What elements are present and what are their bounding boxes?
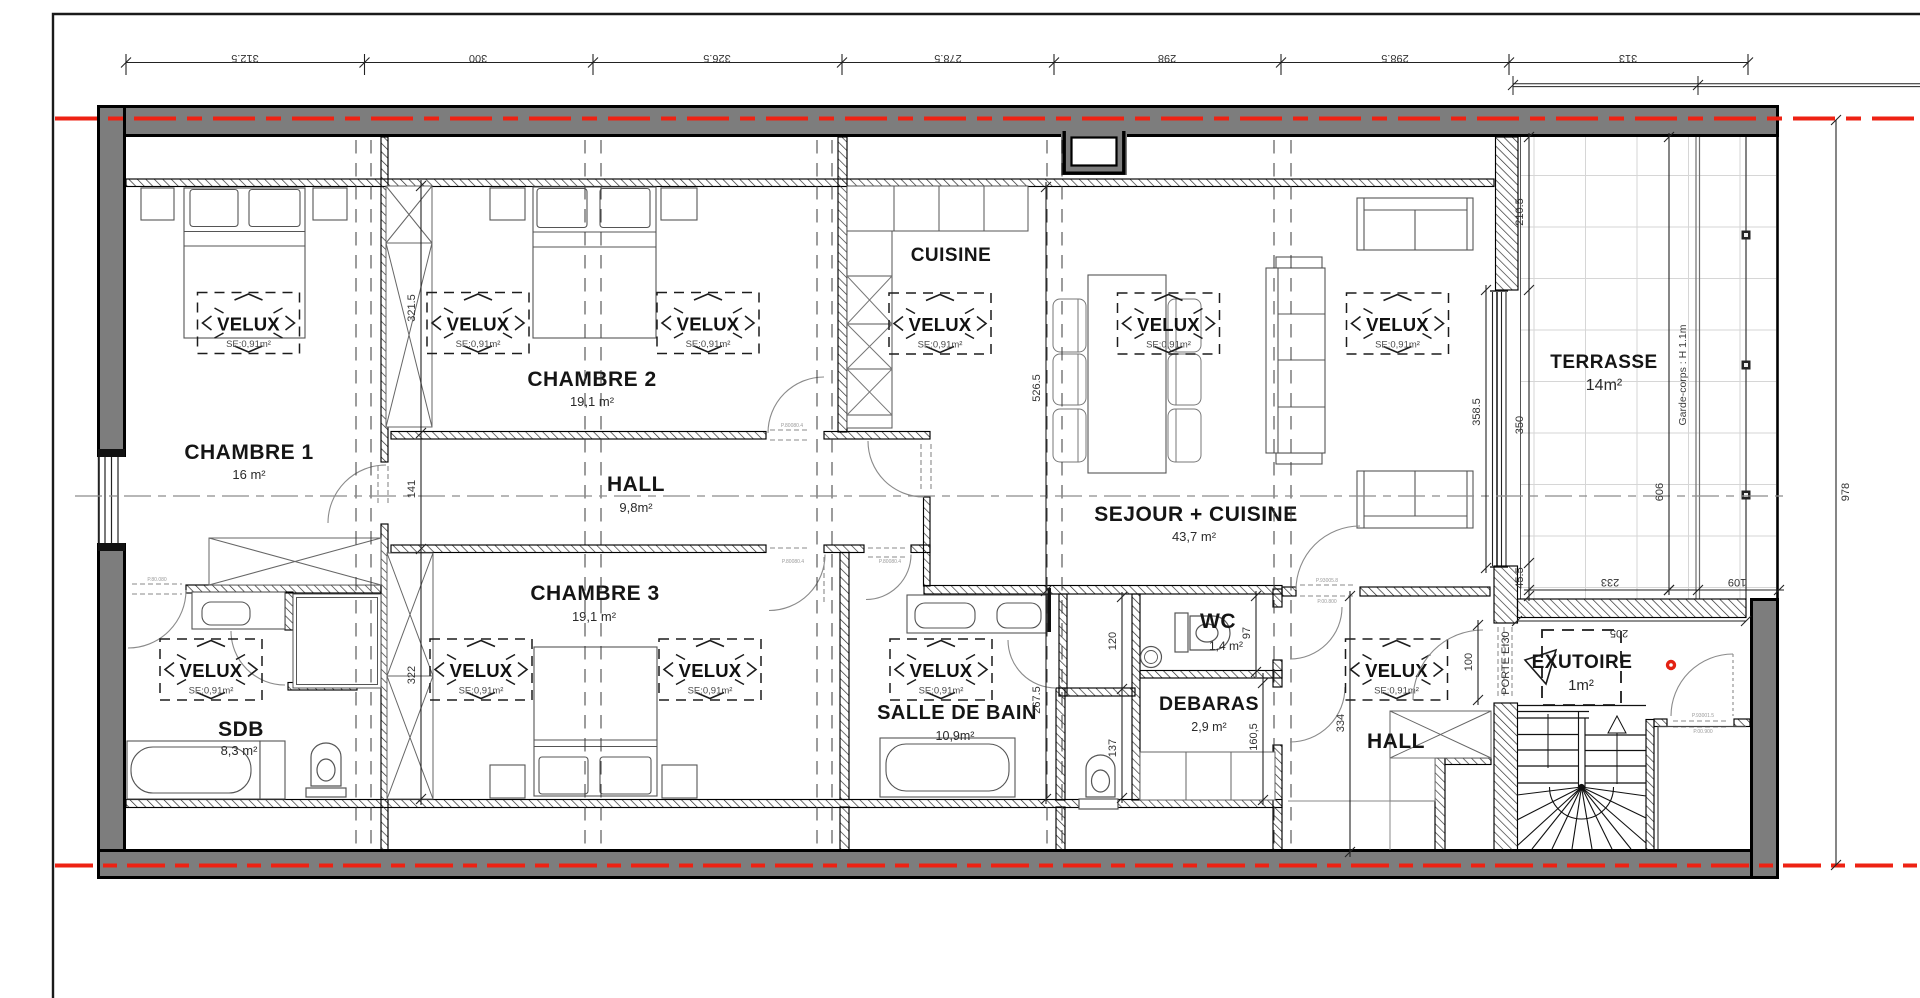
svg-text:14m²: 14m² <box>1586 377 1623 394</box>
svg-text:P.80080.4: P.80080.4 <box>879 559 901 565</box>
svg-text:350: 350 <box>1514 416 1526 434</box>
svg-text:CHAMBRE 2: CHAMBRE 2 <box>527 368 656 391</box>
svg-text:10,9m²: 10,9m² <box>936 729 975 743</box>
svg-text:100: 100 <box>1463 653 1475 671</box>
svg-text:SALLE DE BAIN: SALLE DE BAIN <box>877 702 1037 724</box>
svg-text:HALL: HALL <box>1367 730 1425 753</box>
svg-text:109: 109 <box>1728 576 1746 588</box>
svg-text:526.5: 526.5 <box>1031 374 1043 402</box>
svg-text:233: 233 <box>1601 576 1619 588</box>
svg-text:EXUTOIRE: EXUTOIRE <box>1532 652 1633 673</box>
svg-text:P.80080.4: P.80080.4 <box>781 423 803 429</box>
svg-text:1m²: 1m² <box>1568 677 1594 694</box>
svg-text:1,4 m²: 1,4 m² <box>1209 639 1243 653</box>
svg-text:322: 322 <box>406 666 418 684</box>
svg-text:HALL: HALL <box>607 473 665 496</box>
svg-text:312.5: 312.5 <box>231 52 259 64</box>
svg-text:19,1 m²: 19,1 m² <box>572 609 617 624</box>
svg-text:P.80.080: P.80.080 <box>147 577 167 583</box>
svg-text:210.5: 210.5 <box>1514 198 1526 226</box>
svg-text:43,7 m²: 43,7 m² <box>1172 529 1217 544</box>
svg-text:DEBARAS: DEBARAS <box>1159 693 1259 715</box>
svg-text:160,5: 160,5 <box>1248 723 1260 751</box>
svg-text:P.93001.5: P.93001.5 <box>1692 713 1714 719</box>
svg-text:16 m²: 16 m² <box>232 467 266 482</box>
svg-text:300: 300 <box>469 52 487 64</box>
svg-text:P.93005.8: P.93005.8 <box>1316 578 1338 584</box>
svg-text:PORTE EI30: PORTE EI30 <box>1500 631 1512 694</box>
svg-text:358.5: 358.5 <box>1471 398 1483 426</box>
svg-text:P.80080.4: P.80080.4 <box>782 559 804 565</box>
svg-text:P.00.800: P.00.800 <box>1317 599 1337 605</box>
svg-text:278.5: 278.5 <box>934 52 962 64</box>
svg-text:137: 137 <box>1107 739 1119 757</box>
svg-text:120: 120 <box>1107 632 1119 650</box>
svg-text:9,8m²: 9,8m² <box>619 500 653 515</box>
svg-text:45.5: 45.5 <box>1514 567 1526 588</box>
svg-text:321.5: 321.5 <box>406 294 418 322</box>
svg-text:205: 205 <box>1610 627 1628 639</box>
svg-text:WC: WC <box>1200 610 1236 633</box>
svg-text:SDB: SDB <box>218 718 264 741</box>
svg-text:2,9 m²: 2,9 m² <box>1191 720 1226 734</box>
svg-text:CHAMBRE 1: CHAMBRE 1 <box>184 441 313 464</box>
svg-text:326.5: 326.5 <box>703 52 731 64</box>
svg-text:978: 978 <box>1840 483 1852 501</box>
svg-text:CHAMBRE 3: CHAMBRE 3 <box>530 582 659 605</box>
svg-text:141: 141 <box>406 480 418 498</box>
svg-text:CUISINE: CUISINE <box>911 245 992 266</box>
svg-text:267.5: 267.5 <box>1031 686 1043 714</box>
svg-text:298.5: 298.5 <box>1381 52 1409 64</box>
svg-text:P.00.900: P.00.900 <box>1693 729 1713 735</box>
svg-text:TERRASSE: TERRASSE <box>1550 352 1657 373</box>
svg-text:606: 606 <box>1654 483 1666 501</box>
svg-text:8,3 m²: 8,3 m² <box>221 743 259 758</box>
svg-text:313: 313 <box>1619 52 1637 64</box>
svg-text:298: 298 <box>1158 52 1176 64</box>
svg-text:334: 334 <box>1335 714 1347 732</box>
svg-text:19,1 m²: 19,1 m² <box>570 394 615 409</box>
svg-text:SEJOUR + CUISINE: SEJOUR + CUISINE <box>1094 503 1297 526</box>
svg-text:Garde-corps : H 1.1m: Garde-corps : H 1.1m <box>1677 324 1689 425</box>
svg-text:97: 97 <box>1241 627 1253 639</box>
